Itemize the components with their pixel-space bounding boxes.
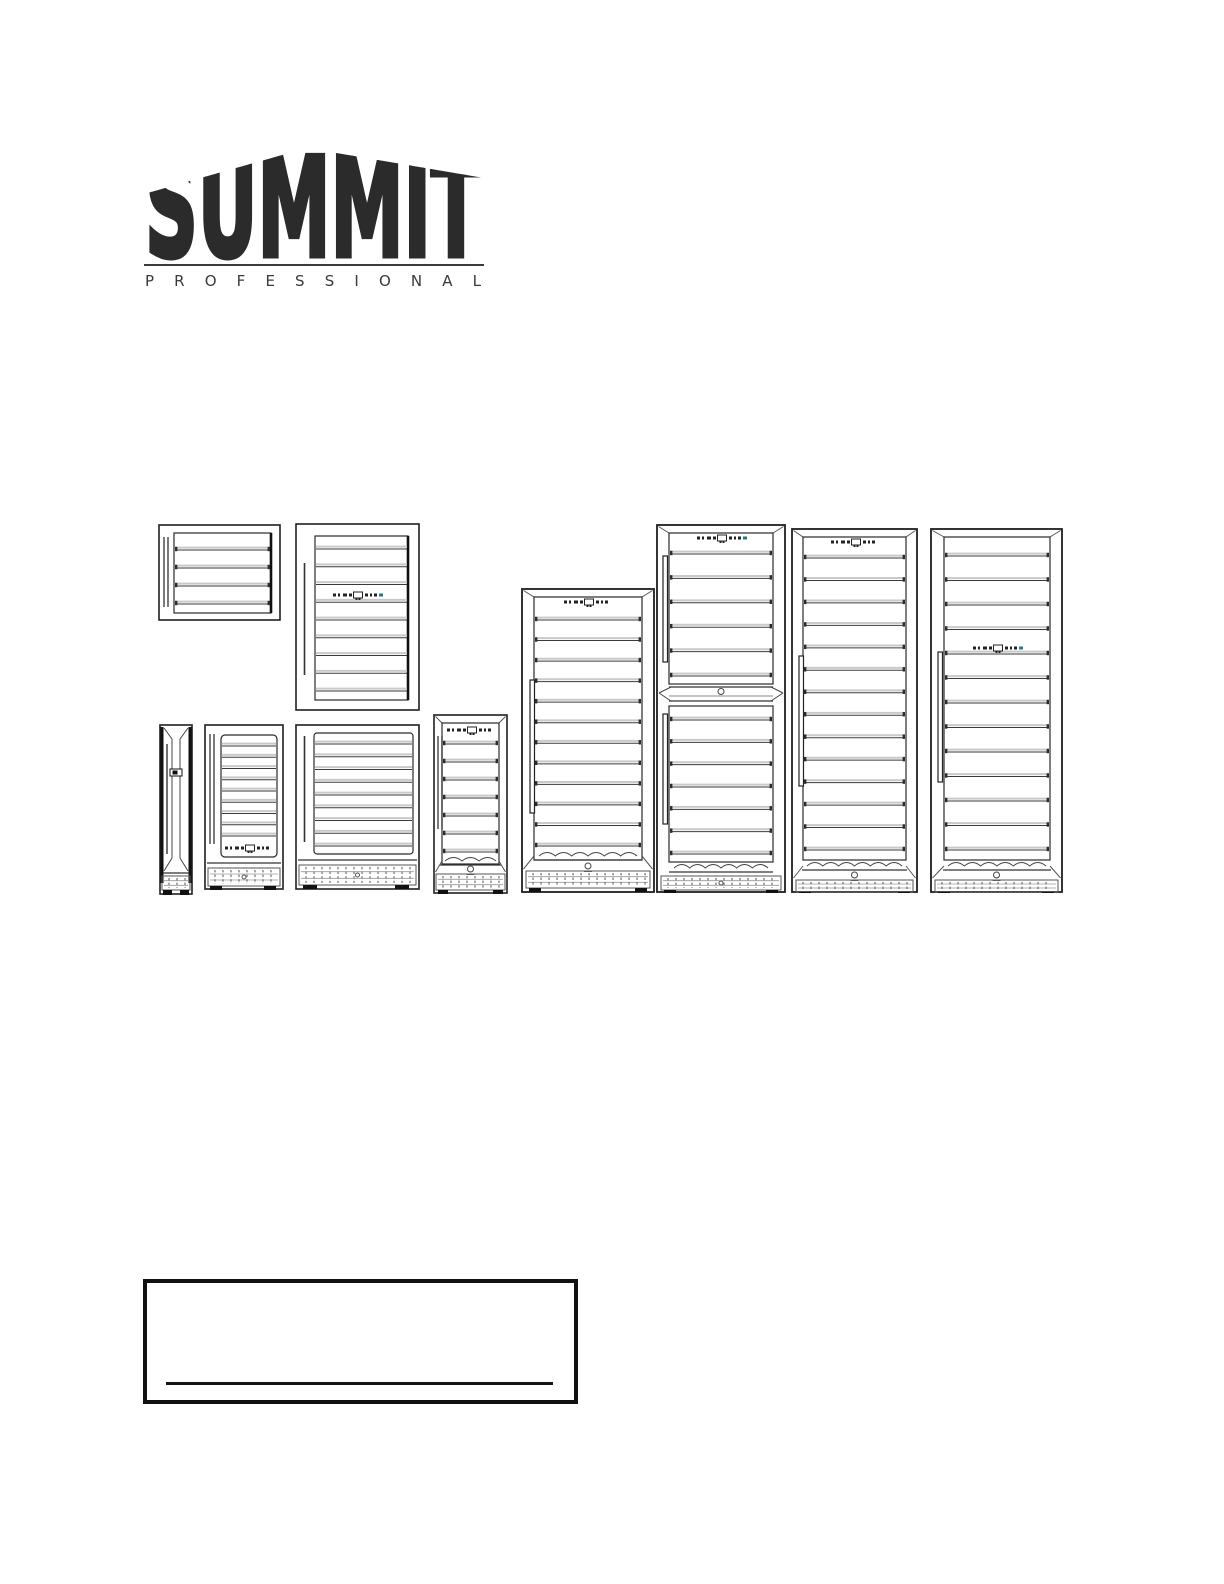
signature-line	[166, 1382, 553, 1385]
brand-subtitle: PROFESSIONAL	[145, 272, 482, 290]
brand-wordmark: SUMMIT	[145, 148, 481, 289]
tall-wine-cellar-top-control-front	[791, 528, 918, 893]
tall-wine-cellar-mid-control-front	[930, 528, 1063, 893]
logo-rule	[144, 264, 484, 266]
slim-tall-wine-cellar-front	[433, 714, 508, 894]
tall-wine-cellar-single-zone-front	[521, 588, 655, 893]
shallow-beverage-center-front	[158, 524, 281, 621]
undercounter-wine-cooler-front	[204, 724, 284, 890]
dual-zone-wine-cellar-front	[656, 524, 786, 893]
manual-cover-page: SUMMIT PROFESSIONAL	[0, 0, 1224, 1584]
slim-wine-column-side	[159, 724, 193, 895]
built-in-wine-cellar-front	[295, 724, 420, 890]
compact-wine-cellar-front	[295, 523, 420, 711]
summit-professional-logo: SUMMIT PROFESSIONAL	[144, 148, 484, 296]
notes-box	[143, 1279, 578, 1404]
